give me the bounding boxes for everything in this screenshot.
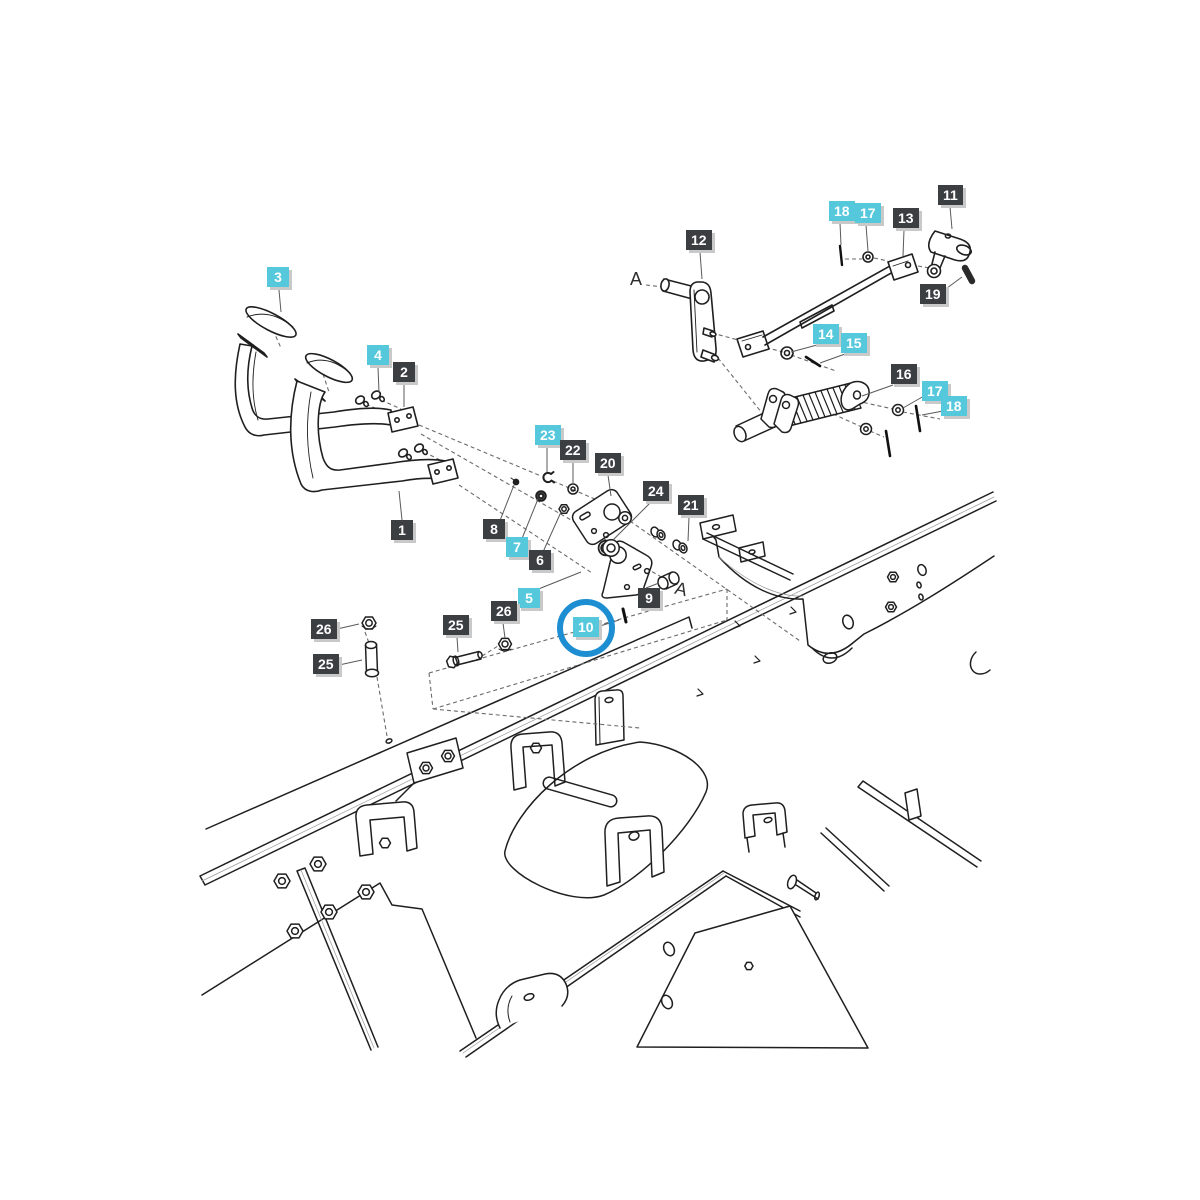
part-label-15[interactable]: 15 (841, 333, 867, 353)
part-label-25[interactable]: 25 (443, 615, 469, 635)
part-label-18[interactable]: 18 (941, 396, 967, 416)
part-label-17[interactable]: 17 (855, 203, 881, 223)
part-label-12[interactable]: 12 (686, 230, 712, 250)
part-label-6[interactable]: 6 (529, 550, 551, 570)
part-label-13[interactable]: 13 (893, 208, 919, 228)
part-label-18[interactable]: 18 (829, 201, 855, 221)
reference-letter-a: A (673, 578, 690, 601)
part-label-26[interactable]: 26 (311, 619, 337, 639)
part-label-1[interactable]: 1 (391, 520, 413, 540)
part-label-20[interactable]: 20 (595, 453, 621, 473)
part-label-5[interactable]: 5 (518, 588, 540, 608)
part-label-23[interactable]: 23 (535, 425, 561, 445)
part-label-24[interactable]: 24 (643, 481, 669, 501)
parts-diagram-page: 3421232220242187652610925262512181713111… (0, 0, 1200, 1200)
part-label-11[interactable]: 11 (938, 185, 963, 205)
part-label-7[interactable]: 7 (506, 537, 528, 557)
part-label-3[interactable]: 3 (267, 267, 289, 287)
reference-letter-a: A (630, 269, 642, 290)
labels-layer: 3421232220242187652610925262512181713111… (0, 0, 1200, 1200)
part-label-14[interactable]: 14 (813, 324, 839, 344)
part-label-8[interactable]: 8 (483, 519, 505, 539)
part-label-25[interactable]: 25 (313, 654, 339, 674)
part-label-16[interactable]: 16 (891, 364, 917, 384)
part-label-9[interactable]: 9 (638, 588, 660, 608)
part-label-19[interactable]: 19 (920, 284, 946, 304)
part-label-10[interactable]: 10 (573, 617, 599, 637)
part-label-21[interactable]: 21 (678, 495, 704, 515)
part-label-4[interactable]: 4 (367, 345, 389, 365)
part-label-2[interactable]: 2 (393, 362, 415, 382)
part-label-22[interactable]: 22 (560, 440, 586, 460)
part-label-26[interactable]: 26 (491, 601, 517, 621)
